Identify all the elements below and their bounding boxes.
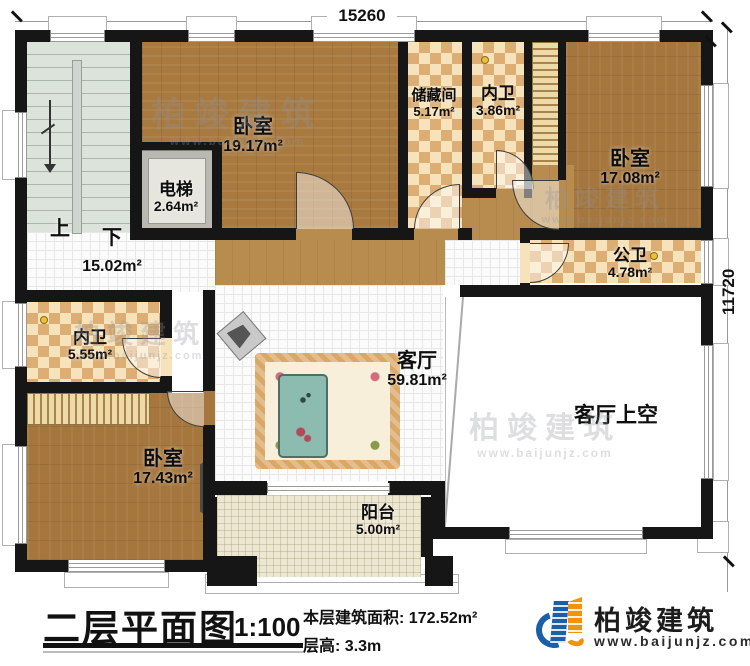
window [313,30,415,42]
living-void-label: 客厅上空 [574,404,658,428]
wall [398,42,408,240]
bedroom-top-left-label: 卧室 19.17m² [223,116,283,156]
plan-scale: 1:100 [234,612,301,643]
balcony-label: 阳台 5.00m² [356,503,400,538]
wall [421,497,433,557]
hall-area-label: 15.02m² [82,258,142,276]
stairs-down-label: 下 [102,227,122,249]
storage-label: 储藏间 5.17m² [411,88,456,119]
living-room-label: 客厅 59.81m² [387,350,447,390]
corridor-tile [445,240,520,285]
logo-swoosh-orange [565,632,585,648]
door-gap [296,228,352,240]
wall [140,142,222,150]
window [588,30,660,42]
logo-tower-orange [568,597,582,633]
window [68,560,165,572]
stairs-up-label: 上 [50,218,70,240]
company-website: www.baijunjz.com [594,633,750,649]
title-underline-thin [43,651,303,653]
bedroom-top-right-label: 卧室 17.08m² [600,148,660,188]
wall [27,290,172,302]
window-sill [713,83,729,189]
wall [641,527,713,539]
light-pull-icon [481,56,489,64]
wall [520,228,713,240]
room-bedroom-top-right [566,42,701,228]
door-gap [160,338,172,376]
sliding-door [267,483,390,493]
window [15,446,27,544]
floor-plan-canvas: 15260 11720 [0,0,750,666]
wall [558,42,566,180]
dimension-right-label: 11720 [719,269,739,315]
dimension-top-label: 15260 [327,6,397,26]
bedroom-bottom-left-label: 卧室 17.43m² [133,448,193,488]
title-underline [43,643,303,648]
wardrobe-closet [27,393,150,425]
wall [460,285,713,297]
window-sill [64,572,169,588]
door-gap [203,391,215,425]
door-gap [414,228,458,240]
dimension-tick [723,555,735,567]
stair-rail [72,60,82,234]
company-logo-icon [536,596,588,652]
window [509,527,643,539]
wall [27,382,172,393]
light-pull-icon [40,316,48,324]
wall [462,42,472,198]
window [701,85,713,187]
floor-height-line: 层高: 3.3m [303,632,381,656]
door-gap [520,243,530,283]
elevator-label: 电梯 2.64m² [154,180,198,215]
bath-top-label: 内卫 3.86m² [476,84,520,119]
bath-left-label: 内卫 5.55m² [68,328,112,363]
wall [130,42,142,240]
window-sill [505,539,647,554]
public-bath-label: 公卫 4.78m² [608,246,652,281]
door-gap [558,180,566,228]
coffee-table [278,374,328,458]
wall-pier [207,556,257,586]
window-sill [713,343,729,481]
wall-pier [425,556,453,586]
wall [203,497,217,558]
wall [212,150,222,240]
window [15,303,27,367]
window [188,30,235,42]
floor-area-line: 本层建筑面积: 172.52m² [303,604,477,628]
window [701,240,713,284]
wall [433,527,509,539]
wall [203,481,267,495]
corridor [215,240,445,285]
window [15,112,27,178]
stair-arrow [49,100,51,166]
wardrobe-closet [532,42,560,167]
window [701,345,713,479]
stair-arrow-head [44,164,56,173]
window [50,30,105,42]
